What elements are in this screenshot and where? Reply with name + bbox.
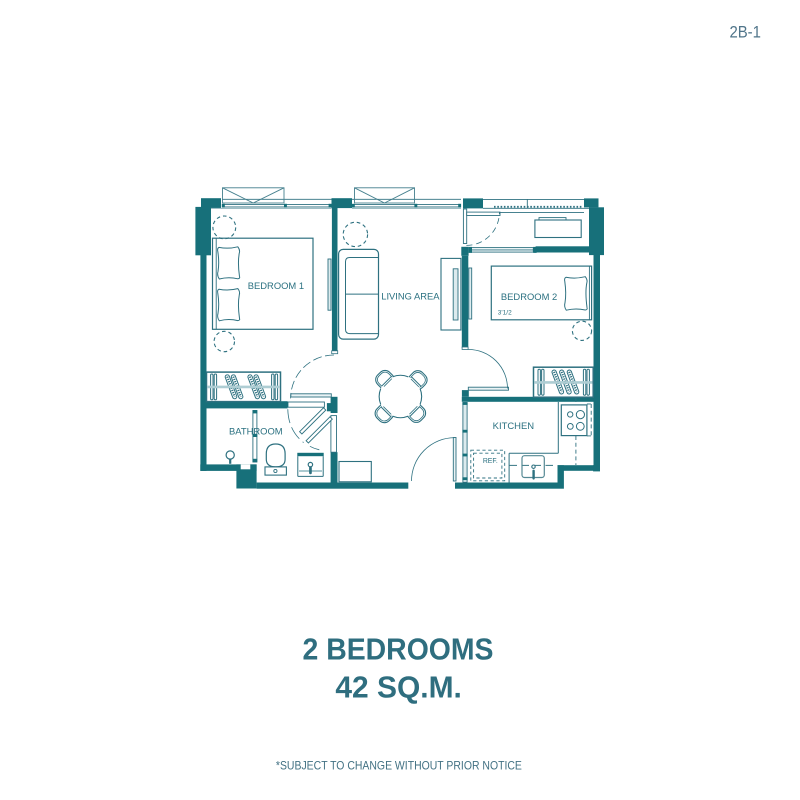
svg-text:BEDROOM 2: BEDROOM 2 xyxy=(501,292,557,303)
svg-text:2 BEDROOMS: 2 BEDROOMS xyxy=(303,631,494,666)
svg-text:LIVING AREA: LIVING AREA xyxy=(381,291,440,302)
svg-text:2B-1: 2B-1 xyxy=(729,23,761,42)
svg-text:42 SQ.M.: 42 SQ.M. xyxy=(335,669,462,704)
svg-text:BEDROOM 1: BEDROOM 1 xyxy=(248,281,304,292)
svg-text:3'1/2: 3'1/2 xyxy=(498,310,512,317)
svg-text:BATHROOM: BATHROOM xyxy=(229,426,283,437)
svg-text:REF.: REF. xyxy=(483,458,498,465)
svg-text:KITCHEN: KITCHEN xyxy=(493,421,535,432)
svg-text:*SUBJECT TO CHANGE WITHOUT PRI: *SUBJECT TO CHANGE WITHOUT PRIOR NOTICE xyxy=(276,759,522,773)
